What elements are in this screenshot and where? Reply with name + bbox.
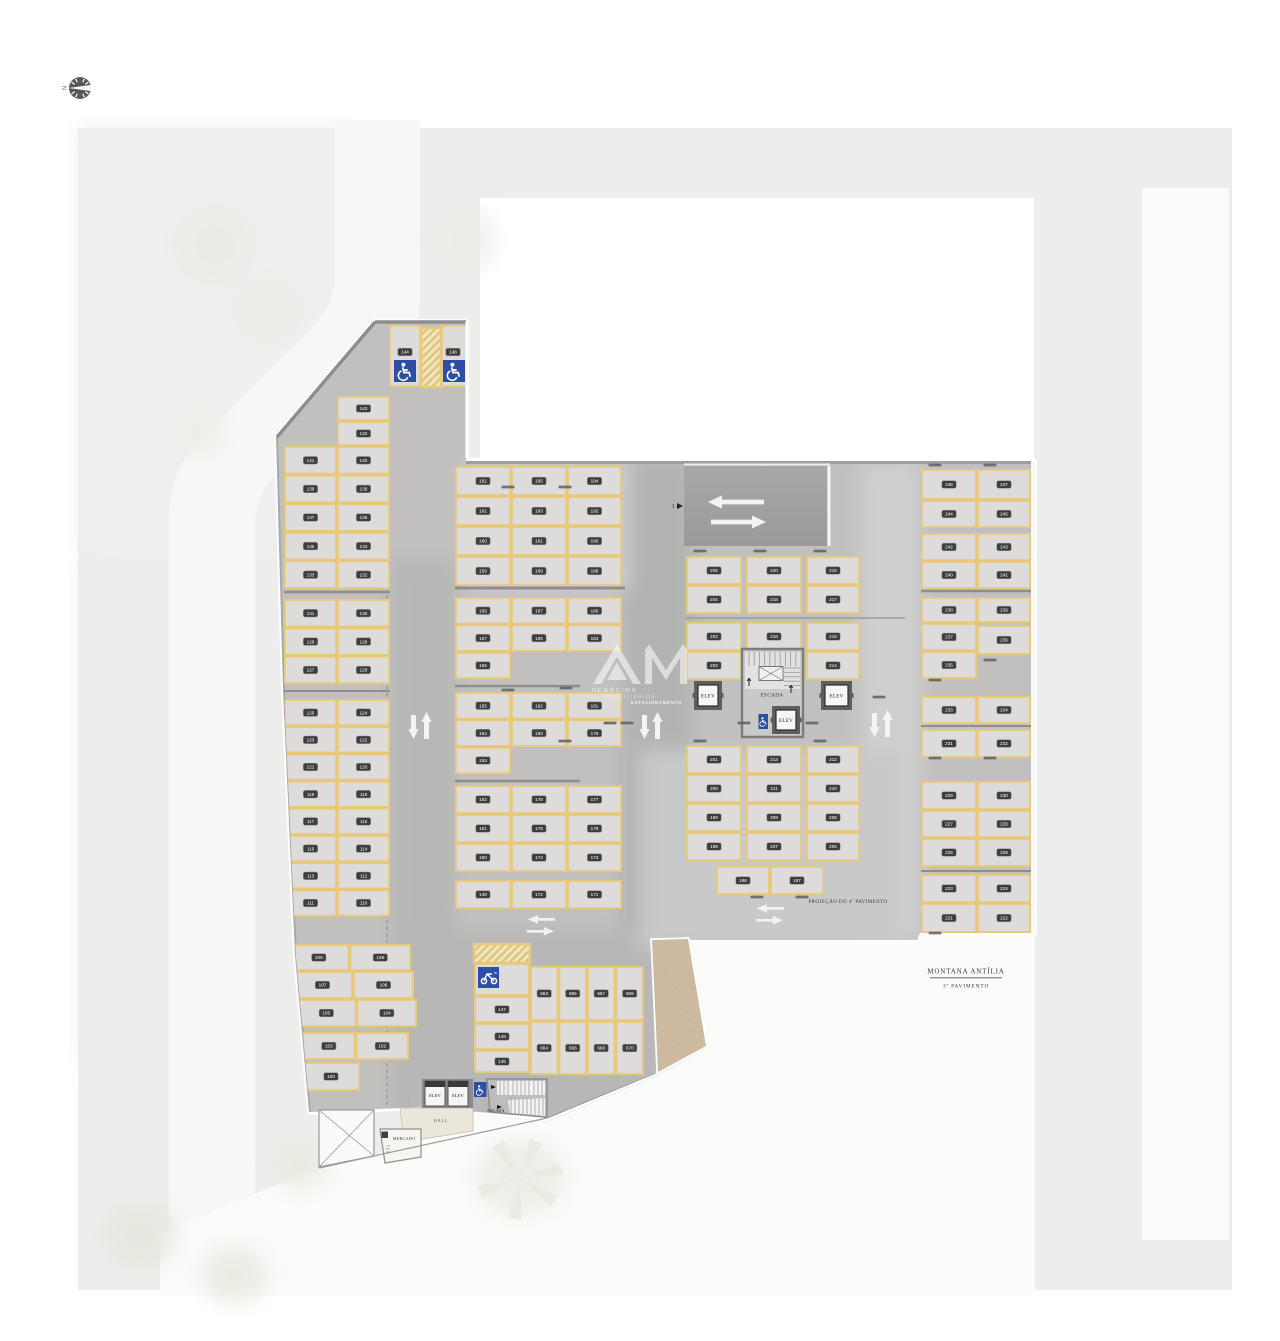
- svg-text:178: 178: [535, 797, 543, 802]
- svg-text:195: 195: [535, 479, 543, 484]
- svg-text:191: 191: [535, 539, 543, 544]
- svg-text:109: 109: [315, 955, 323, 960]
- svg-text:ELEV: ELEV: [701, 695, 715, 700]
- svg-text:182: 182: [535, 703, 543, 708]
- svg-text:151: 151: [479, 826, 487, 831]
- svg-text:132: 132: [360, 572, 368, 577]
- svg-text:138: 138: [360, 487, 368, 492]
- svg-text:173: 173: [591, 855, 599, 860]
- svg-text:242: 242: [945, 545, 953, 550]
- svg-text:235: 235: [945, 663, 953, 668]
- svg-text:ESCADA: ESCADA: [760, 694, 783, 699]
- svg-text:220: 220: [770, 568, 778, 573]
- svg-text:205: 205: [710, 568, 718, 573]
- svg-text:174: 174: [535, 855, 543, 860]
- svg-text:129: 129: [307, 639, 315, 644]
- svg-text:142: 142: [360, 431, 368, 436]
- svg-text:663: 663: [540, 991, 548, 996]
- svg-text:128: 128: [360, 639, 368, 644]
- svg-text:239: 239: [1000, 608, 1008, 613]
- svg-text:158: 158: [479, 608, 487, 613]
- svg-text:176: 176: [535, 826, 543, 831]
- svg-text:127: 127: [307, 668, 315, 673]
- svg-text:148: 148: [449, 350, 457, 355]
- svg-text:154: 154: [479, 731, 487, 736]
- svg-text:243: 243: [1000, 545, 1008, 550]
- svg-text:670: 670: [626, 1046, 634, 1051]
- svg-text:111: 111: [307, 901, 314, 906]
- svg-text:227: 227: [945, 822, 953, 827]
- svg-text:228: 228: [1000, 822, 1008, 827]
- svg-text:225: 225: [945, 850, 953, 855]
- svg-text:668: 668: [597, 1046, 605, 1051]
- svg-text:145: 145: [498, 1059, 506, 1064]
- svg-text:190: 190: [591, 539, 599, 544]
- svg-text:1: 1: [672, 504, 675, 510]
- svg-text:196: 196: [739, 878, 747, 883]
- svg-text:123: 123: [307, 738, 315, 743]
- svg-text:236: 236: [1000, 638, 1008, 643]
- svg-text:237: 237: [945, 635, 953, 640]
- svg-text:112: 112: [360, 874, 368, 879]
- svg-text:179: 179: [591, 731, 599, 736]
- svg-text:189: 189: [535, 569, 543, 574]
- svg-text:218: 218: [770, 597, 778, 602]
- svg-text:238: 238: [945, 608, 953, 613]
- svg-text:102: 102: [378, 1044, 386, 1049]
- svg-text:222: 222: [1000, 916, 1008, 921]
- svg-text:186: 186: [591, 608, 599, 613]
- svg-text:157: 157: [479, 636, 487, 641]
- svg-text:153: 153: [479, 758, 487, 763]
- svg-text:104: 104: [383, 1011, 391, 1016]
- svg-text:108: 108: [376, 955, 384, 960]
- svg-text:180: 180: [535, 731, 543, 736]
- svg-text:234: 234: [1000, 708, 1008, 713]
- svg-text:141: 141: [307, 458, 315, 463]
- svg-text:230: 230: [1000, 793, 1008, 798]
- svg-text:137: 137: [307, 515, 315, 520]
- svg-text:NEGÓCIOS: NEGÓCIOS: [592, 687, 637, 694]
- svg-text:162: 162: [479, 479, 487, 484]
- svg-text:213: 213: [770, 757, 778, 762]
- svg-text:215: 215: [829, 634, 837, 639]
- svg-text:202: 202: [710, 663, 718, 668]
- svg-text:187: 187: [535, 608, 543, 613]
- svg-text:233: 233: [945, 708, 953, 713]
- svg-text:665: 665: [569, 991, 577, 996]
- svg-text:150: 150: [479, 855, 487, 860]
- svg-text:110: 110: [360, 901, 368, 906]
- svg-text:147: 147: [498, 1007, 506, 1012]
- svg-text:240: 240: [945, 573, 953, 578]
- svg-text:223: 223: [945, 886, 953, 891]
- svg-text:241: 241: [1000, 573, 1008, 578]
- svg-text:117: 117: [307, 819, 315, 824]
- svg-text:198: 198: [710, 844, 718, 849]
- svg-text:216: 216: [770, 634, 778, 639]
- svg-text:664: 664: [540, 1046, 548, 1051]
- svg-text:231: 231: [945, 741, 953, 746]
- svg-text:172: 172: [535, 892, 543, 897]
- svg-text:203: 203: [710, 634, 718, 639]
- svg-text:217: 217: [829, 597, 837, 602]
- svg-text:204: 204: [710, 597, 718, 602]
- svg-text:130: 130: [360, 611, 368, 616]
- svg-text:171: 171: [591, 892, 599, 897]
- svg-text:3º PAVIMENTO: 3º PAVIMENTO: [943, 984, 989, 990]
- svg-text:219: 219: [829, 568, 837, 573]
- svg-text:207: 207: [770, 844, 778, 849]
- svg-text:ELEV: ELEV: [429, 1093, 441, 1098]
- svg-text:133: 133: [307, 572, 315, 577]
- svg-text:144: 144: [401, 350, 409, 355]
- svg-text:107: 107: [319, 983, 327, 988]
- svg-text:121: 121: [307, 765, 315, 770]
- svg-text:226: 226: [1000, 850, 1008, 855]
- svg-text:131: 131: [307, 611, 315, 616]
- svg-text:211: 211: [770, 786, 778, 791]
- svg-text:244: 244: [945, 512, 953, 517]
- svg-text:ESCADA: ESCADA: [487, 1108, 504, 1113]
- svg-text:160: 160: [479, 539, 487, 544]
- svg-text:209: 209: [770, 815, 778, 820]
- svg-text:193: 193: [535, 509, 543, 514]
- svg-text:124: 124: [360, 710, 368, 715]
- svg-text:669: 669: [626, 991, 634, 996]
- svg-text:136: 136: [360, 515, 368, 520]
- svg-text:201: 201: [710, 757, 718, 762]
- svg-text:206: 206: [829, 844, 837, 849]
- svg-text:175: 175: [591, 826, 599, 831]
- svg-text:232: 232: [1000, 741, 1008, 746]
- svg-text:146: 146: [498, 1034, 506, 1039]
- svg-text:103: 103: [325, 1044, 333, 1049]
- svg-text:105: 105: [322, 1011, 330, 1016]
- svg-text:119: 119: [307, 792, 315, 797]
- svg-text:200: 200: [710, 786, 718, 791]
- svg-text:100: 100: [327, 1074, 335, 1079]
- svg-text:m: m: [494, 971, 497, 975]
- svg-text:MERCADO: MERCADO: [393, 1137, 415, 1141]
- svg-text:184: 184: [591, 636, 599, 641]
- svg-text:181: 181: [591, 703, 599, 708]
- svg-text:192: 192: [591, 509, 599, 514]
- svg-text:229: 229: [945, 793, 953, 798]
- svg-text:159: 159: [479, 569, 487, 574]
- svg-text:ELEV: ELEV: [452, 1093, 464, 1098]
- svg-text:115: 115: [307, 846, 315, 851]
- svg-text:ELEV: ELEV: [830, 695, 844, 700]
- svg-text:134: 134: [360, 544, 368, 549]
- svg-text:125: 125: [307, 710, 315, 715]
- svg-text:155: 155: [479, 703, 487, 708]
- svg-text:212: 212: [829, 757, 837, 762]
- svg-text:246: 246: [945, 482, 953, 487]
- svg-text:ESTACIONAMENTO: ESTACIONAMENTO: [631, 700, 682, 705]
- svg-text:118: 118: [360, 792, 368, 797]
- svg-text:126: 126: [360, 668, 368, 673]
- svg-text:114: 114: [360, 846, 368, 851]
- svg-text:106: 106: [380, 983, 388, 988]
- svg-text:194: 194: [591, 479, 599, 484]
- svg-text:156: 156: [479, 663, 487, 668]
- svg-text:MONTANA ANTÍLIA: MONTANA ANTÍLIA: [927, 968, 1004, 976]
- svg-text:210: 210: [829, 786, 837, 791]
- svg-text:120: 120: [360, 765, 368, 770]
- svg-text:ELEV: ELEV: [779, 719, 793, 724]
- svg-text:152: 152: [479, 797, 487, 802]
- svg-text:666: 666: [569, 1046, 577, 1051]
- svg-text:N: N: [63, 86, 69, 90]
- svg-text:214: 214: [829, 663, 837, 668]
- svg-text:HALL: HALL: [434, 1118, 448, 1123]
- svg-text:140: 140: [360, 458, 368, 463]
- svg-text:221: 221: [945, 916, 953, 921]
- svg-text:135: 135: [307, 544, 315, 549]
- svg-text:122: 122: [360, 738, 368, 743]
- svg-text:224: 224: [1000, 886, 1008, 891]
- svg-text:161: 161: [479, 509, 487, 514]
- svg-text:113: 113: [307, 874, 315, 879]
- svg-text:208: 208: [829, 815, 837, 820]
- svg-text:197: 197: [793, 878, 801, 883]
- svg-text:667: 667: [597, 991, 605, 996]
- svg-text:149: 149: [479, 892, 487, 897]
- svg-text:116: 116: [360, 819, 368, 824]
- svg-text:188: 188: [591, 569, 599, 574]
- svg-text:139: 139: [307, 487, 315, 492]
- svg-text:PROJEÇÃO DO 4º PAVIMENTO: PROJEÇÃO DO 4º PAVIMENTO: [808, 899, 887, 905]
- svg-text:247: 247: [1000, 482, 1008, 487]
- svg-text:143: 143: [360, 406, 368, 411]
- svg-text:199: 199: [710, 815, 718, 820]
- svg-text:177: 177: [591, 797, 599, 802]
- svg-text:245: 245: [1000, 512, 1008, 517]
- svg-text:185: 185: [535, 636, 543, 641]
